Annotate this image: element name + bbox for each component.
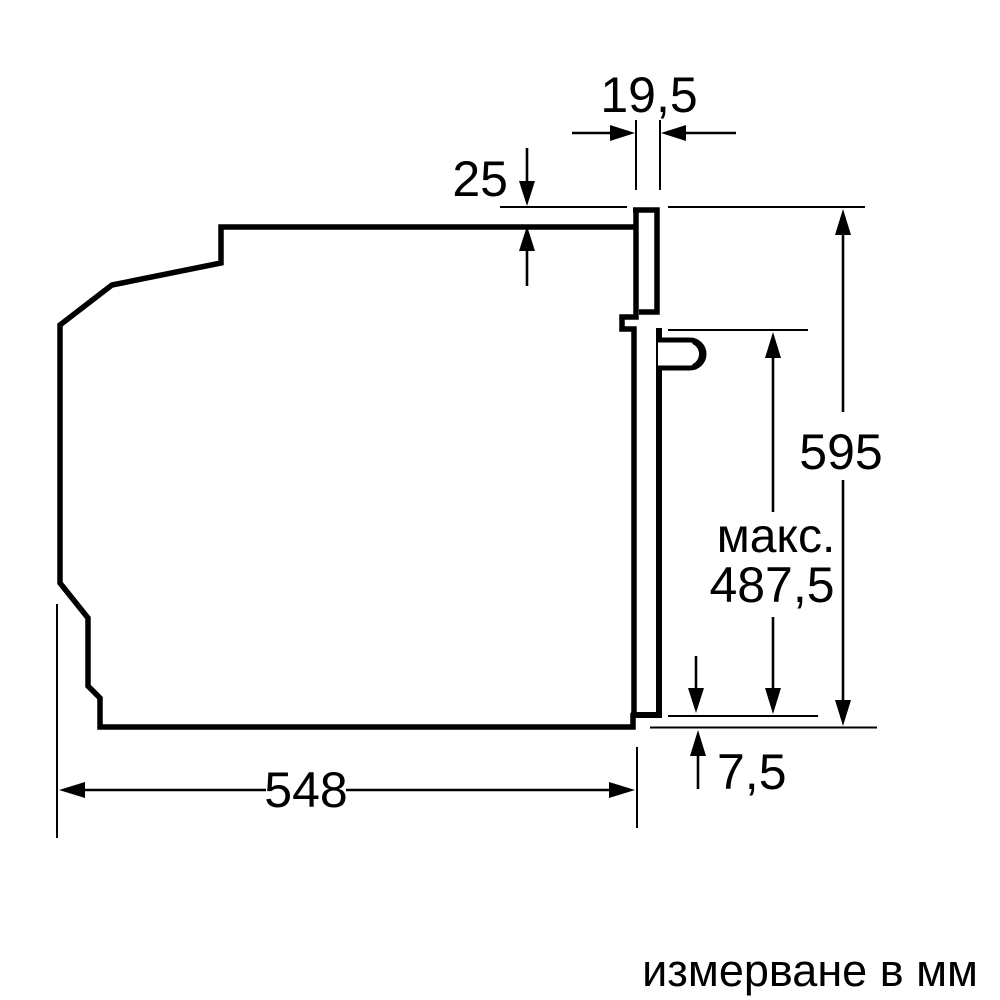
dim-label-top-inset: 25	[452, 151, 508, 207]
dim-label-depth: 548	[264, 762, 347, 818]
dim-label-door-front: 19,5	[600, 67, 697, 123]
dim-depth: 548	[57, 604, 637, 838]
unit-note: измерване в мм	[642, 945, 978, 996]
arrowhead-right	[609, 782, 635, 798]
arrowhead-up	[835, 209, 851, 235]
oven-body-outline	[60, 227, 636, 727]
arrowhead-down	[835, 700, 851, 726]
dim-height: 595	[799, 209, 882, 726]
dim-top-inset: 25	[452, 148, 535, 286]
dim-max-opening: макс. 487,5	[709, 332, 835, 714]
arrowhead-right	[610, 125, 635, 141]
arrowhead-left	[661, 125, 686, 141]
diagram-canvas: 19,5 25 595 макс. 487,5 7,5	[0, 0, 1000, 1000]
dim-label-max-prefix: макс.	[717, 510, 836, 563]
arrowhead-up	[765, 332, 781, 358]
oven-door	[622, 208, 704, 715]
oven-body	[60, 227, 636, 727]
dim-label-height: 595	[799, 424, 882, 480]
arrowhead-left	[59, 782, 85, 798]
dim-label-bottom-gap: 7,5	[717, 744, 787, 800]
arrowhead-down	[688, 688, 704, 713]
arrowhead-up	[690, 730, 706, 756]
door-left-edge	[622, 208, 636, 713]
arrowhead-down	[519, 181, 535, 206]
dim-door-front: 19,5	[572, 67, 736, 190]
dim-label-max-value: 487,5	[709, 557, 834, 613]
oven-installation-diagram: 19,5 25 595 макс. 487,5 7,5	[0, 0, 1000, 1000]
arrowhead-down	[765, 688, 781, 714]
